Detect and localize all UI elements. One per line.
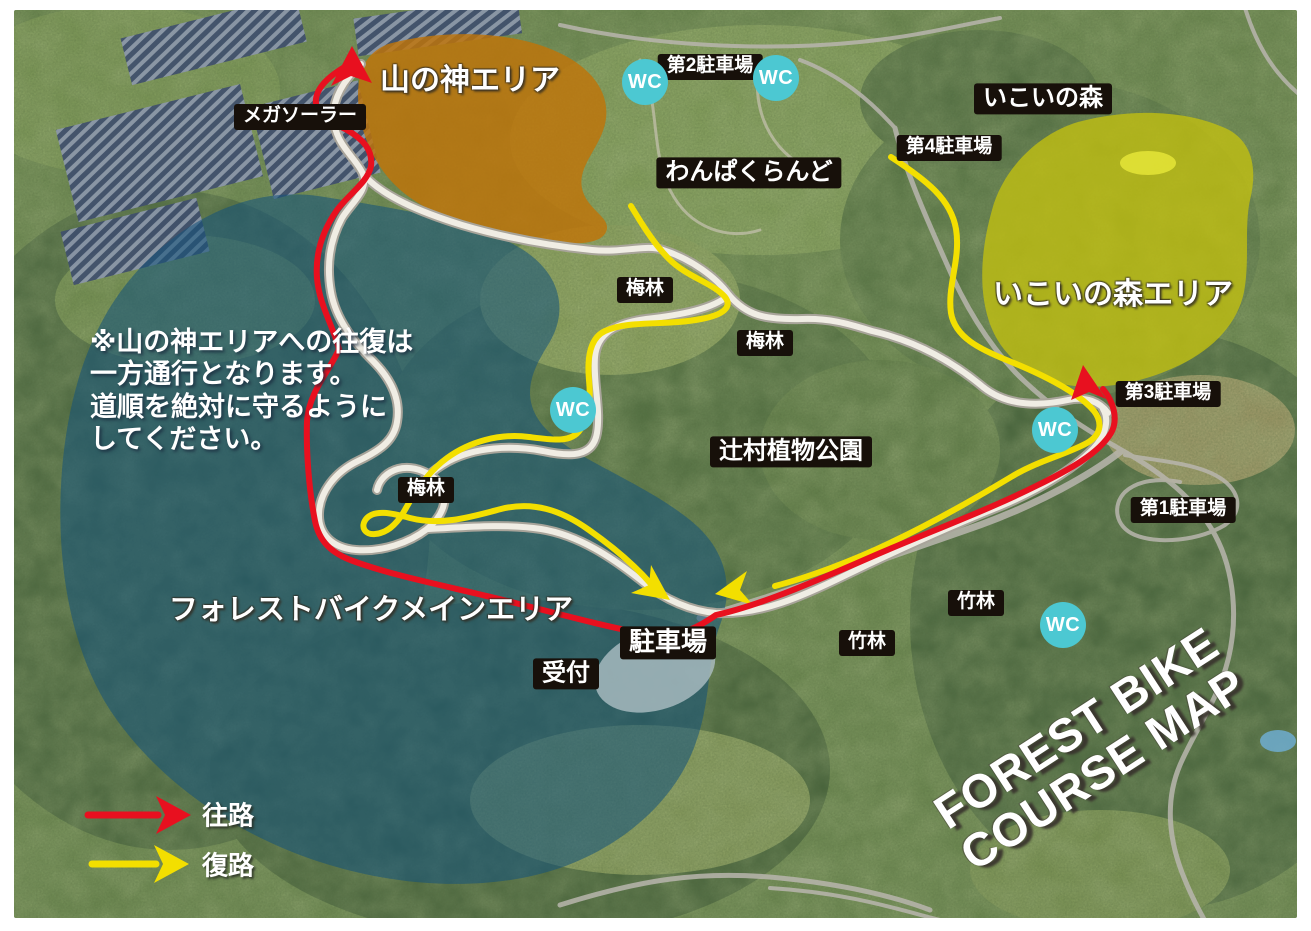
pond-small <box>1260 730 1296 752</box>
one-way-notice: ※山の神エリアへの往復は 一方通行となります。 道順を絶対に守るように してくだ… <box>90 326 413 456</box>
notice-line-3: 道順を絶対に守るように <box>90 391 413 423</box>
label-bamboo-grove-1: 竹林 <box>948 590 1004 616</box>
notice-line-2: 一方通行となります。 <box>90 358 413 390</box>
label-parking-no2: 第2駐車場 <box>658 54 763 80</box>
label-reception: 受付 <box>533 658 599 689</box>
label-parking-no1: 第1駐車場 <box>1131 497 1236 523</box>
label-parking-no3: 第3駐車場 <box>1116 381 1221 407</box>
wc-badge-3: WC <box>550 387 596 433</box>
label-bamboo-grove-2: 竹林 <box>839 630 895 656</box>
notice-line-4: してください。 <box>90 423 413 455</box>
wc-badge-1: WC <box>622 59 668 105</box>
notice-line-1: ※山の神エリアへの往復は <box>90 326 413 358</box>
legend-return-label: 復路 <box>202 846 254 883</box>
legend-outbound-label: 往路 <box>202 796 254 833</box>
label-ikoi-no-mori: いこいの森 <box>974 83 1112 114</box>
label-tsujimura-botanical-park: 辻村植物公園 <box>710 436 872 467</box>
label-mega-solar: メガソーラー <box>234 104 366 130</box>
wc-badge-2: WC <box>753 55 799 101</box>
label-wanpaku-land: わんぱくらんど <box>656 157 841 188</box>
wc-badge-5: WC <box>1040 602 1086 648</box>
label-parking-main: 駐車場 <box>620 626 716 659</box>
area-label-forest-bike-main: フォレストバイクメインエリア <box>169 586 573 628</box>
label-plum-grove-1: 梅林 <box>617 277 673 303</box>
area-label-yamanokami: 山の神エリア <box>380 55 560 99</box>
label-parking-no4: 第4駐車場 <box>897 135 1002 161</box>
label-plum-grove-2: 梅林 <box>737 330 793 356</box>
wc-badge-4: WC <box>1032 407 1078 453</box>
area-label-ikoinomori: いこいの森エリア <box>993 269 1233 313</box>
forest-bike-course-map: 山の神エリア いこいの森エリア フォレストバイクメインエリア ※山の神エリアへの… <box>0 0 1311 931</box>
ikoinomori-clearing <box>1120 151 1176 175</box>
label-plum-grove-3: 梅林 <box>398 477 454 503</box>
